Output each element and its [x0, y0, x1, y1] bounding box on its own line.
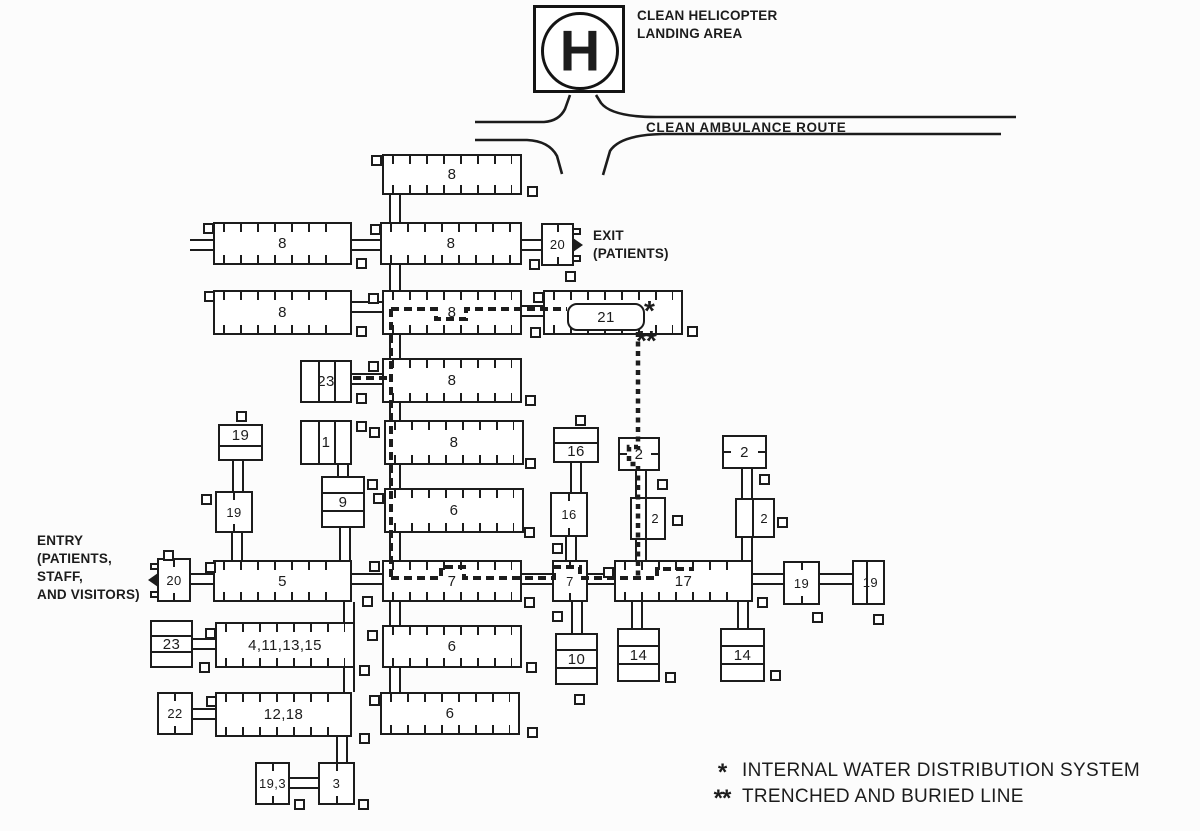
building-label: 3	[333, 776, 341, 791]
utility-marker	[574, 694, 585, 705]
building-19: 19	[215, 491, 253, 533]
building-label: 8	[448, 373, 457, 388]
corridor	[352, 373, 382, 385]
entry-label: ENTRY (PATIENTS, STAFF, AND VISITORS)	[37, 532, 140, 604]
building-16: 16	[553, 427, 599, 463]
corridor	[522, 573, 552, 585]
utility-marker	[205, 628, 216, 639]
building-8: 8	[384, 420, 524, 465]
corridor	[193, 708, 215, 720]
building-label: 21	[597, 310, 615, 325]
edge-tick	[336, 796, 338, 804]
tent-ticks	[225, 623, 345, 632]
edge-tick	[569, 561, 571, 569]
building-label: 4,11,13,15	[248, 638, 322, 653]
entry-label-line2: (PATIENTS,	[37, 550, 140, 568]
helipad-label-line2: LANDING AREA	[637, 25, 777, 43]
corridor	[389, 335, 401, 358]
building-19-3: 19,3	[255, 762, 290, 805]
utility-marker	[369, 561, 380, 572]
edge-tick	[651, 453, 659, 455]
tent-ticks	[390, 693, 510, 702]
buried-line-marker: **	[636, 330, 656, 352]
building-label: 12,18	[264, 707, 304, 722]
tent-ticks	[392, 393, 512, 402]
corridor	[635, 471, 647, 497]
building-8: 8	[382, 290, 522, 335]
road-line	[603, 134, 1001, 175]
hospital-site-plan: H CLEAN HELICOPTER LANDING AREA CLEAN AM…	[0, 0, 1200, 831]
building-label: 5	[278, 574, 287, 589]
legend: * INTERNAL WATER DISTRIBUTION SYSTEM ** …	[702, 758, 1140, 810]
corridor	[231, 533, 243, 560]
corridor	[193, 638, 215, 650]
tent-ticks	[553, 291, 673, 300]
corridor	[741, 469, 753, 498]
corridor	[753, 573, 783, 585]
building-label: 19	[232, 428, 250, 443]
utility-marker	[657, 479, 668, 490]
utility-marker	[294, 799, 305, 810]
building-label: 23	[163, 637, 181, 652]
building-21: 21	[543, 290, 683, 335]
building-6: 6	[382, 625, 522, 668]
utility-marker	[533, 292, 544, 303]
road-line	[475, 95, 570, 122]
building-label: 19	[226, 505, 241, 520]
building-5: 5	[213, 560, 352, 602]
building-1: 1	[300, 420, 352, 465]
utility-marker	[203, 223, 214, 234]
building-label: 2	[760, 511, 768, 526]
corridor	[389, 668, 401, 692]
building-label: 17	[675, 574, 693, 589]
tent-ticks	[390, 255, 512, 264]
building-label: 20	[166, 573, 181, 588]
tent-ticks	[394, 455, 514, 464]
building-label: 10	[568, 652, 586, 667]
utility-marker	[236, 411, 247, 422]
building-2: 2	[630, 497, 666, 540]
building-6: 6	[380, 692, 520, 735]
entry-label-line1: ENTRY	[37, 532, 140, 550]
tent-ticks	[390, 725, 510, 734]
building-label: 8	[450, 435, 459, 450]
utility-marker	[204, 291, 215, 302]
building-2: 2	[722, 435, 767, 469]
utility-marker	[873, 614, 884, 625]
corridor	[352, 239, 382, 251]
building-8: 8	[382, 358, 522, 403]
door-tab	[150, 591, 159, 598]
building-label: 19	[794, 576, 809, 591]
corridor	[522, 305, 543, 317]
helipad-label-line1: CLEAN HELICOPTER	[637, 7, 777, 25]
utility-marker	[367, 479, 378, 490]
building-label: 14	[734, 648, 752, 663]
divider	[752, 500, 754, 536]
edge-tick	[568, 528, 570, 536]
utility-marker	[369, 695, 380, 706]
building-7: 7	[382, 560, 522, 602]
building-23: 23	[300, 360, 352, 403]
building-label: 2	[635, 447, 644, 462]
building-20: 20	[541, 223, 574, 266]
utility-marker	[369, 427, 380, 438]
entry-label-line3: STAFF,	[37, 568, 140, 586]
building-14: 14	[720, 628, 765, 682]
tent-ticks	[225, 727, 342, 736]
edge-tick	[557, 257, 559, 265]
utility-marker	[356, 393, 367, 404]
utility-marker	[777, 517, 788, 528]
tent-ticks	[223, 291, 342, 300]
utility-marker	[205, 562, 216, 573]
corridor	[339, 528, 351, 560]
utility-marker	[530, 327, 541, 338]
tent-ticks	[225, 693, 342, 702]
edge-tick	[557, 224, 559, 232]
building-14: 14	[617, 628, 660, 682]
legend-row-buried-line: ** TRENCHED AND BURIED LINE	[702, 784, 1140, 810]
corridor	[389, 533, 401, 560]
edge-tick	[758, 451, 766, 453]
corridor	[290, 777, 318, 789]
edge-tick	[569, 593, 571, 601]
exit-label-line2: (PATIENTS)	[593, 245, 669, 263]
utility-marker	[672, 515, 683, 526]
utility-marker	[759, 474, 770, 485]
corridor	[565, 537, 577, 560]
corridor	[336, 737, 348, 762]
utility-marker	[370, 224, 381, 235]
building-label: 8	[447, 236, 456, 251]
utility-marker	[527, 186, 538, 197]
building-label: 22	[167, 706, 182, 721]
utility-marker	[552, 611, 563, 622]
building-label: 6	[450, 503, 459, 518]
corridor	[389, 265, 401, 290]
corridor	[571, 602, 583, 633]
utility-marker	[525, 458, 536, 469]
corridor	[635, 540, 647, 560]
building-label: 6	[446, 706, 455, 721]
building-label: 23	[317, 374, 335, 389]
ambulance-route-label: CLEAN AMBULANCE ROUTE	[646, 119, 846, 137]
building-12-18: 12,18	[215, 692, 352, 737]
door-tab	[572, 255, 581, 262]
entry-label-line4: AND VISITORS)	[37, 586, 140, 604]
building-20: 20	[157, 558, 191, 602]
building-label: 19,3	[259, 776, 286, 791]
building-6: 6	[384, 488, 524, 533]
building-label: 7	[448, 574, 457, 589]
exit-label: EXIT (PATIENTS)	[593, 227, 669, 263]
legend-row-internal-water: * INTERNAL WATER DISTRIBUTION SYSTEM	[702, 758, 1140, 784]
utility-marker	[359, 733, 370, 744]
road-line	[596, 95, 1016, 117]
corridor	[389, 602, 401, 625]
edge-tick	[619, 453, 627, 455]
tent-ticks	[223, 325, 342, 334]
utility-marker	[163, 550, 174, 561]
corridor	[352, 573, 382, 585]
building-2: 2	[735, 498, 775, 538]
utility-marker	[603, 567, 614, 578]
building-17: 17	[614, 560, 753, 602]
utility-marker	[358, 799, 369, 810]
utility-marker	[367, 630, 378, 641]
utility-marker	[565, 271, 576, 282]
utility-marker	[525, 395, 536, 406]
edge-tick	[174, 693, 176, 701]
divider	[645, 499, 647, 538]
corridor	[389, 465, 401, 488]
tent-ticks	[624, 592, 743, 601]
corridor	[232, 461, 244, 491]
entry-arrow-icon	[148, 573, 158, 587]
tent-ticks	[223, 592, 342, 601]
utility-marker	[529, 259, 540, 270]
building-19: 19	[852, 560, 885, 605]
building-label: 6	[448, 639, 457, 654]
building-16: 16	[550, 492, 588, 537]
building-3: 3	[318, 762, 355, 805]
corridor	[741, 538, 753, 560]
corridor	[389, 195, 401, 222]
tent-ticks	[392, 185, 512, 194]
corridor	[737, 602, 749, 628]
corridor	[191, 573, 213, 585]
building-7: 7	[552, 560, 588, 602]
tent-ticks	[223, 255, 342, 264]
building-9: 9	[321, 476, 365, 528]
utility-marker	[371, 155, 382, 166]
water-tank: 21	[567, 303, 645, 331]
helipad-circle: H	[541, 12, 619, 90]
building-label: 20	[550, 237, 565, 252]
utility-marker	[201, 494, 212, 505]
utility-marker	[356, 421, 367, 432]
building-8: 8	[382, 154, 522, 195]
building-19: 19	[218, 424, 263, 461]
utility-marker	[687, 326, 698, 337]
utility-marker	[356, 326, 367, 337]
helipad-label: CLEAN HELICOPTER LANDING AREA	[637, 7, 777, 43]
edge-tick	[173, 593, 175, 601]
tent-ticks	[392, 325, 512, 334]
utility-marker	[356, 258, 367, 269]
tent-ticks	[394, 421, 514, 430]
tent-ticks	[223, 561, 342, 570]
edge-tick	[272, 796, 274, 804]
building-4-11-13-15: 4,11,13,15	[215, 622, 355, 668]
helipad-h-symbol: H	[560, 22, 600, 79]
corridor	[343, 602, 355, 622]
building-19: 19	[783, 561, 820, 605]
exit-label-line1: EXIT	[593, 227, 669, 245]
edge-tick	[233, 492, 235, 500]
tent-ticks	[392, 592, 512, 601]
utility-marker	[526, 662, 537, 673]
corridor	[190, 239, 213, 251]
building-label: 14	[630, 648, 648, 663]
tent-ticks	[394, 489, 514, 498]
utility-marker	[373, 493, 384, 504]
tent-ticks	[624, 561, 743, 570]
utility-marker	[206, 696, 217, 707]
door-tab	[150, 563, 159, 570]
building-label: 8	[278, 236, 287, 251]
corridor	[522, 239, 541, 251]
corridor	[631, 602, 643, 628]
utility-marker	[665, 672, 676, 683]
edge-tick	[801, 562, 803, 570]
building-label: 8	[448, 167, 457, 182]
building-label: 8	[448, 305, 457, 320]
building-label: 7	[566, 574, 574, 589]
helipad: H	[533, 5, 625, 93]
exit-arrow-icon	[573, 238, 583, 252]
divider	[220, 445, 261, 447]
building-label: 9	[339, 495, 348, 510]
building-8: 8	[380, 222, 522, 265]
utility-marker	[770, 670, 781, 681]
building-8: 8	[213, 290, 352, 335]
edge-tick	[801, 596, 803, 604]
divider	[334, 422, 336, 463]
utility-marker	[362, 596, 373, 607]
edge-tick	[568, 493, 570, 501]
legend-text-buried-line: TRENCHED AND BURIED LINE	[742, 784, 1024, 810]
divider	[318, 422, 320, 463]
building-8: 8	[213, 222, 352, 265]
utility-marker	[812, 612, 823, 623]
corridor	[337, 465, 349, 476]
building-2: 2	[618, 437, 660, 471]
building-23: 23	[150, 620, 193, 668]
utility-marker	[199, 662, 210, 673]
utility-marker	[552, 543, 563, 554]
tent-ticks	[392, 155, 512, 164]
building-10: 10	[555, 633, 598, 685]
utility-marker	[368, 293, 379, 304]
building-label: 16	[561, 507, 576, 522]
utility-marker	[524, 597, 535, 608]
tent-ticks	[392, 359, 512, 368]
building-label: 16	[567, 444, 585, 459]
tent-ticks	[390, 223, 512, 232]
building-label: 1	[322, 435, 331, 450]
utility-marker	[757, 597, 768, 608]
corridor	[570, 463, 582, 492]
corridor	[389, 403, 401, 420]
building-label: 2	[740, 445, 749, 460]
legend-marker-double-asterisk: **	[702, 784, 742, 814]
edge-tick	[174, 726, 176, 734]
tent-ticks	[392, 561, 512, 570]
tent-ticks	[392, 626, 512, 635]
legend-text-internal-water: INTERNAL WATER DISTRIBUTION SYSTEM	[742, 758, 1140, 784]
edge-tick	[336, 763, 338, 771]
utility-marker	[527, 727, 538, 738]
utility-marker	[359, 665, 370, 676]
edge-tick	[233, 524, 235, 532]
building-label: 2	[651, 511, 659, 526]
internal-water-marker: *	[644, 300, 654, 322]
corridor	[820, 573, 852, 585]
building-label: 19	[863, 575, 878, 590]
edge-tick	[272, 763, 274, 771]
tent-ticks	[394, 523, 514, 532]
corridor	[343, 668, 355, 692]
tent-ticks	[392, 658, 512, 667]
utility-marker	[575, 415, 586, 426]
utility-marker	[368, 361, 379, 372]
tent-ticks	[225, 658, 345, 667]
tent-ticks	[223, 223, 342, 232]
edge-tick	[723, 451, 731, 453]
building-label: 8	[278, 305, 287, 320]
door-tab	[572, 228, 581, 235]
tent-ticks	[392, 291, 512, 300]
utility-marker	[524, 527, 535, 538]
building-22: 22	[157, 692, 193, 735]
